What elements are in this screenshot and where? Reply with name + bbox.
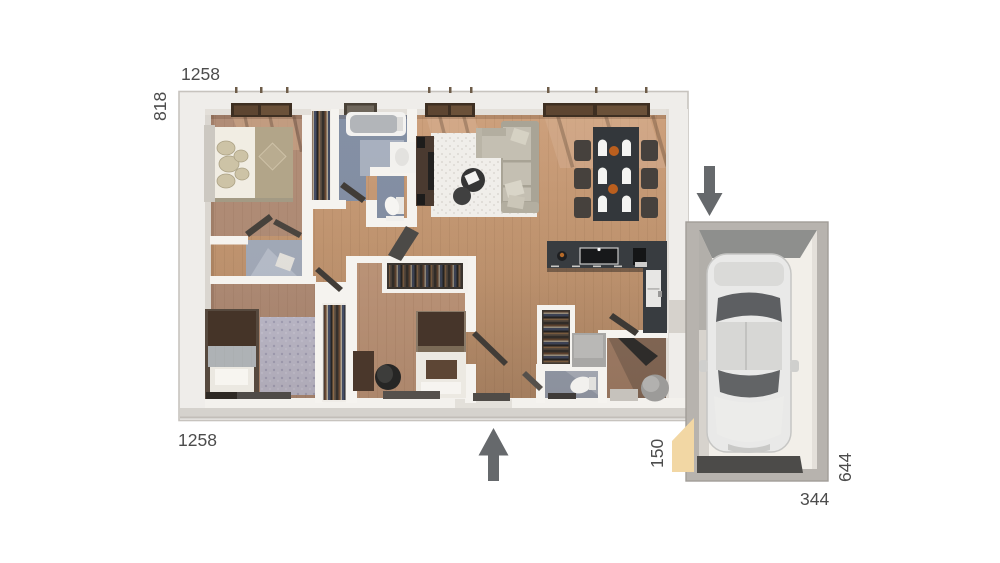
svg-text:818: 818	[150, 92, 170, 121]
svg-text:644: 644	[835, 453, 855, 482]
svg-text:344: 344	[800, 489, 829, 509]
svg-text:150: 150	[647, 439, 667, 468]
svg-text:1258: 1258	[178, 430, 217, 450]
svg-text:1258: 1258	[181, 64, 220, 84]
